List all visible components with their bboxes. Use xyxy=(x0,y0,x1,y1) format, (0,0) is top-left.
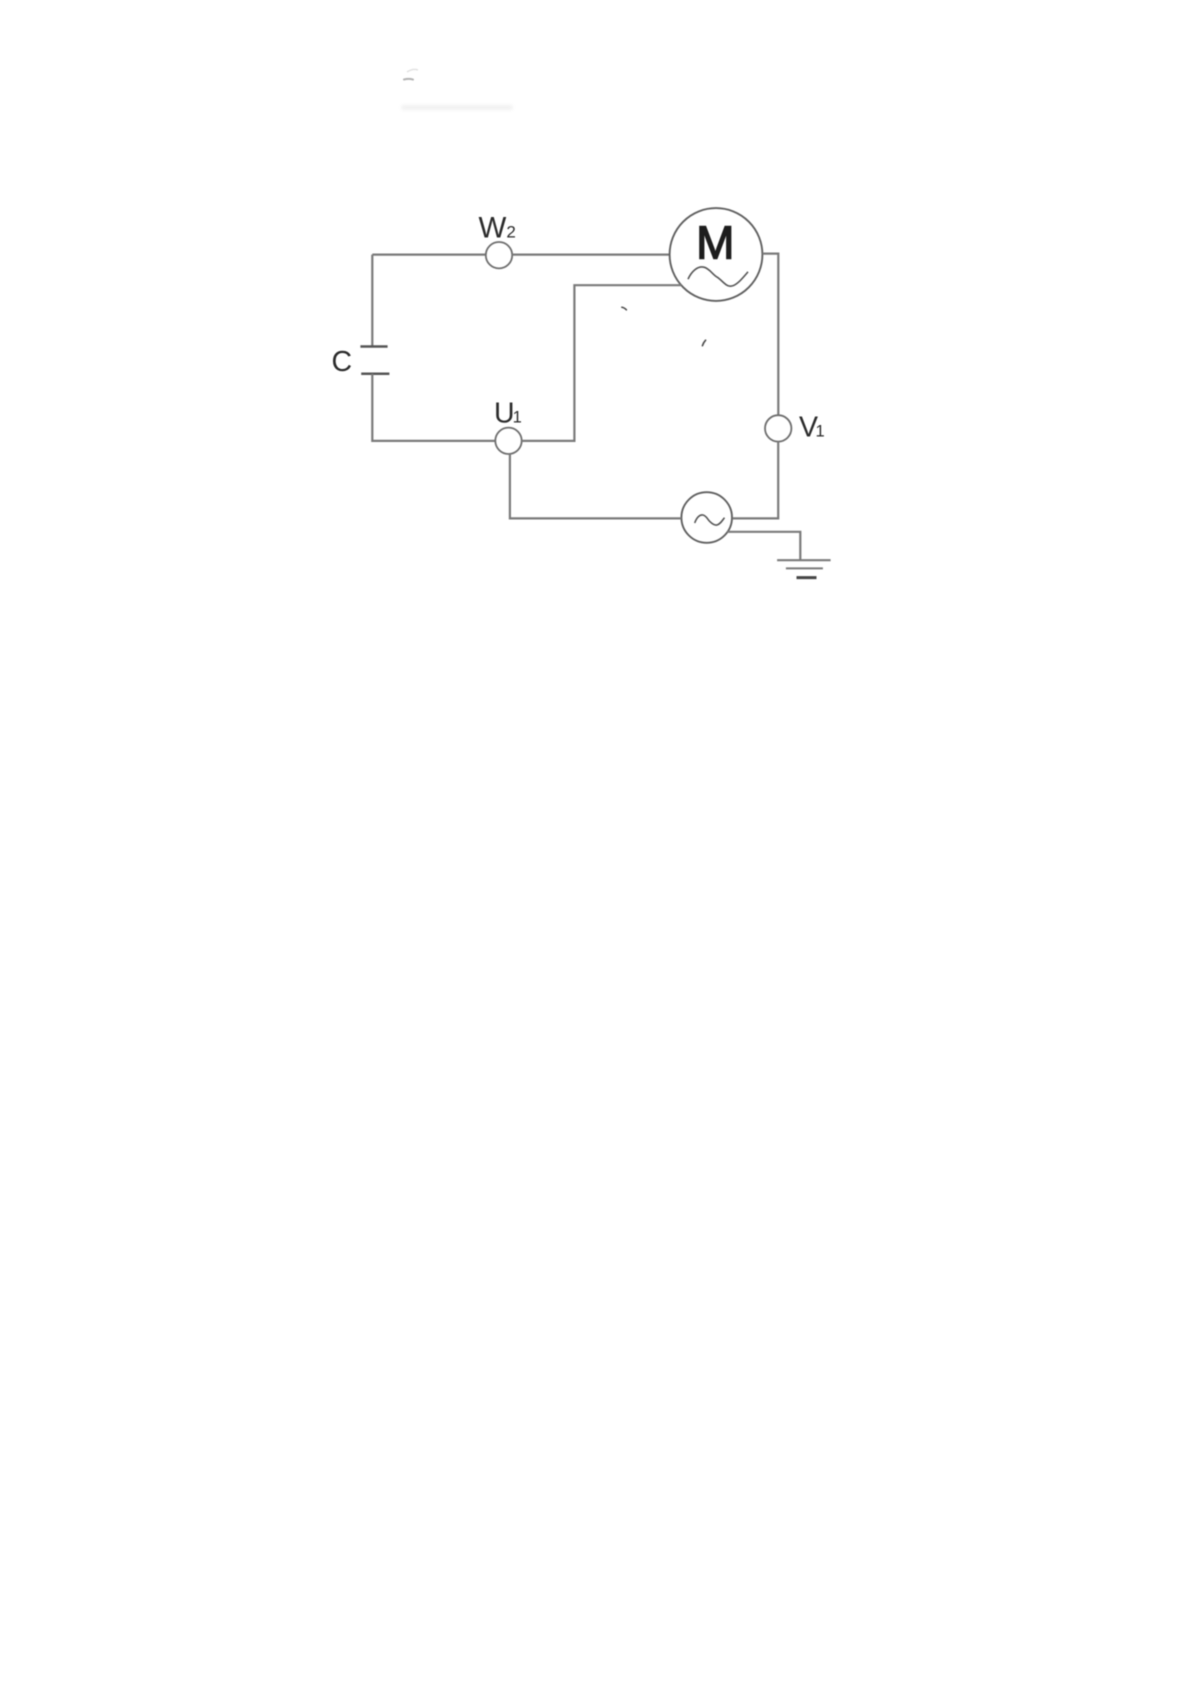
svg-text:C: C xyxy=(332,346,353,378)
svg-text:M: M xyxy=(696,216,734,268)
